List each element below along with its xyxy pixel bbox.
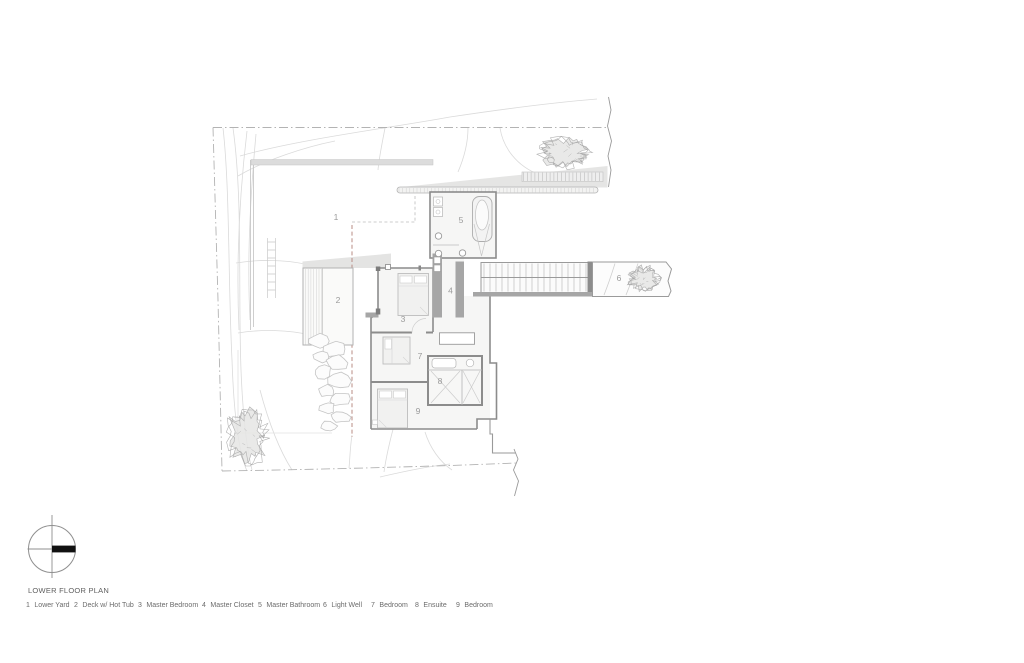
- room-label-1: 1: [334, 212, 339, 222]
- legend-item-2: 2Deck w/ Hot Tub: [74, 602, 134, 609]
- floor-plan-svg: 1 2 3 4 5 6 7 8 9: [0, 0, 1024, 663]
- vanity-sink: [434, 197, 443, 206]
- north-arrow: [28, 515, 76, 578]
- column: [435, 233, 441, 239]
- room-label-9: 9: [416, 406, 421, 416]
- ensuite-toilet: [466, 359, 474, 367]
- stairs: [481, 262, 593, 294]
- upper-fence-strip: [522, 172, 603, 182]
- roof-fascia-strip: [397, 187, 598, 193]
- vanity-sink: [434, 208, 443, 217]
- room-label-8: 8: [438, 376, 443, 386]
- legend-item-5: 5Master Bathroom: [258, 602, 320, 609]
- legend-item-6: 6Light Well: [323, 602, 362, 609]
- yard-stair-ladder: [268, 238, 276, 298]
- legend-item-3: 3Master Bedroom: [138, 602, 198, 609]
- room-label-6: 6: [617, 273, 622, 283]
- legend-item-8: 8Ensuite: [415, 602, 447, 609]
- bed-bedroom-9: [373, 389, 408, 428]
- room-label-7: 7: [418, 351, 423, 361]
- legend-item-9: 9Bedroom: [456, 602, 493, 609]
- deck-board-hatch: [306, 269, 322, 345]
- room-label-4: 4: [448, 286, 453, 296]
- floor-plan-canvas: 1 2 3 4 5 6 7 8 9 LOWER FLOOR PLAN 1Lowe…: [0, 0, 1024, 663]
- column: [459, 250, 465, 256]
- north-arrow-bar: [52, 546, 76, 553]
- room-label-3: 3: [401, 314, 406, 324]
- room-legend: 1Lower Yard 2Deck w/ Hot Tub 3Master Bed…: [0, 602, 1024, 616]
- room-label-2: 2: [336, 295, 341, 305]
- boulder-cluster: [309, 333, 352, 431]
- ensuite-sink: [432, 359, 456, 369]
- bed-bedroom-7: [383, 337, 410, 364]
- room-label-5: 5: [459, 215, 464, 225]
- legend-item-1: 1Lower Yard: [26, 602, 70, 609]
- column: [435, 250, 441, 256]
- bed-master: [398, 274, 429, 316]
- upper-fence-hatch: [524, 173, 600, 182]
- plan-title: LOWER FLOOR PLAN: [28, 586, 109, 595]
- legend-item-7: 7Bedroom: [371, 602, 408, 609]
- deck-roof-overhang: [303, 254, 392, 269]
- ensuite-room: [428, 356, 482, 405]
- legend-item-4: 4Master Closet: [202, 602, 254, 609]
- deck-room: [303, 268, 353, 345]
